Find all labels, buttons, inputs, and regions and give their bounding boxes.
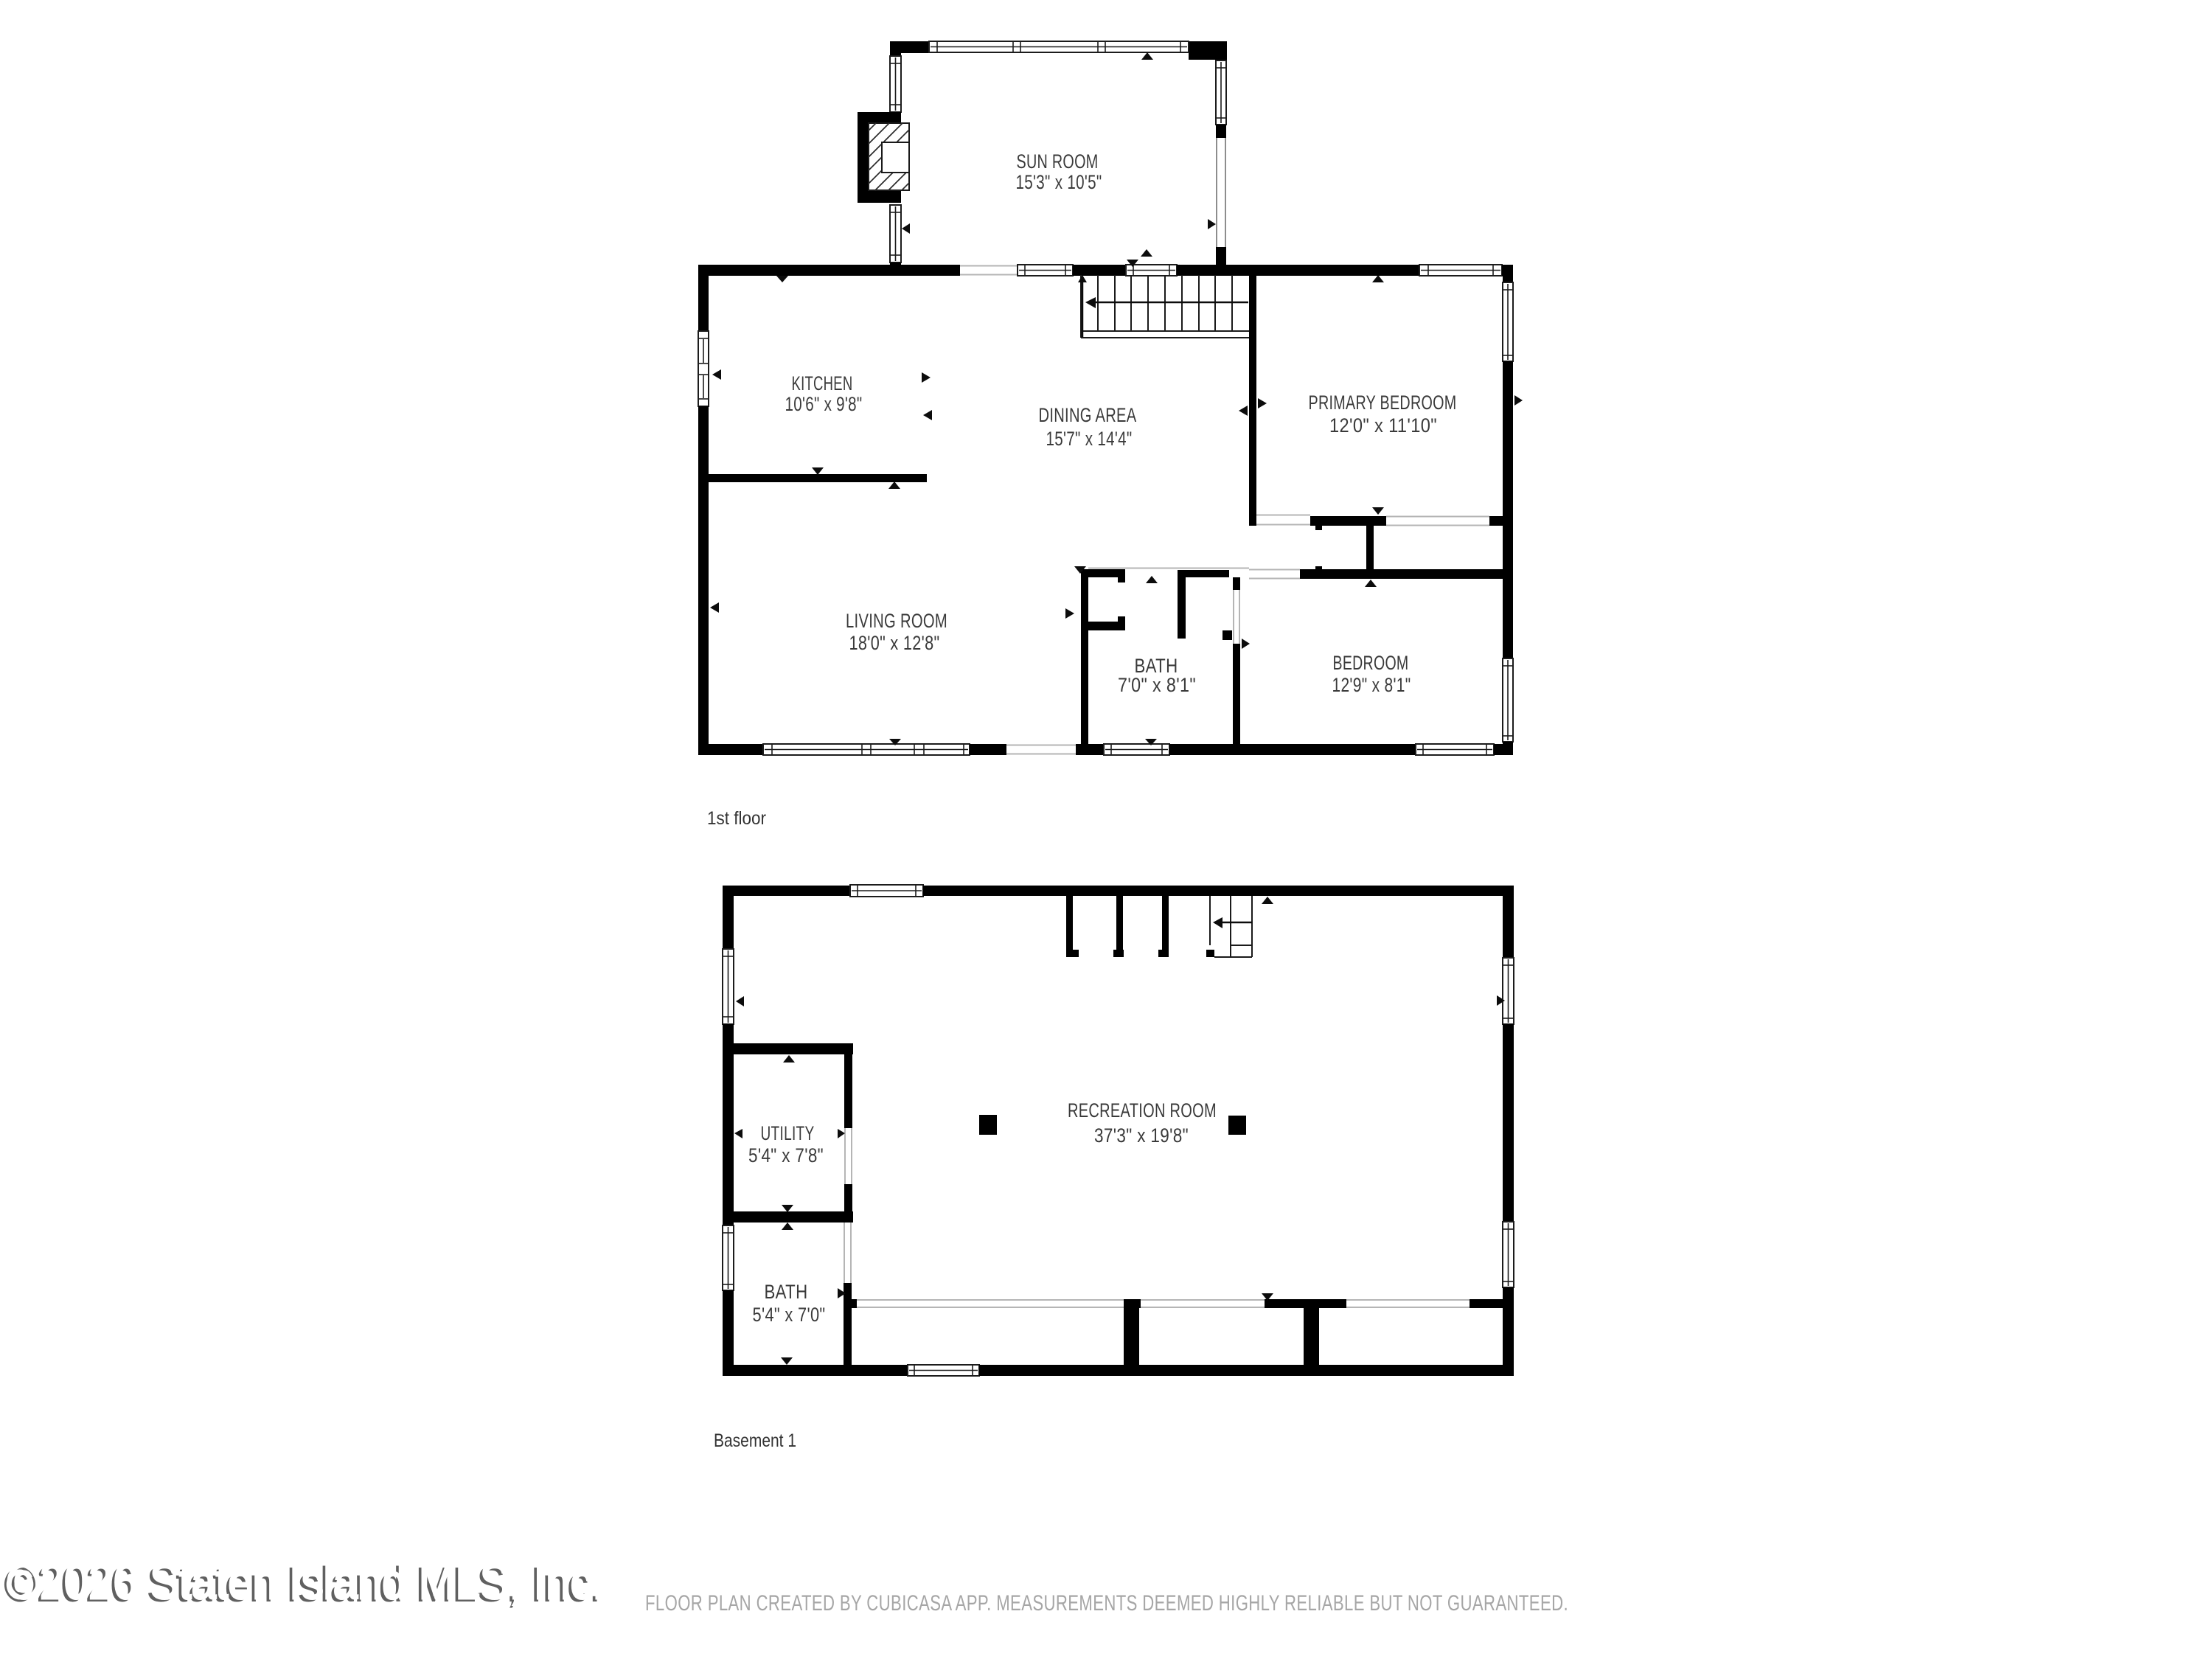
- svg-text:10'6" x 9'8": 10'6" x 9'8": [785, 393, 863, 415]
- svg-text:©2026 Staten Island MLS, Inc.: ©2026 Staten Island MLS, Inc.: [7, 1554, 605, 1610]
- svg-text:1st floor: 1st floor: [707, 808, 766, 829]
- svg-text:KITCHEN: KITCHEN: [792, 372, 853, 394]
- svg-text:LIVING ROOM: LIVING ROOM: [846, 610, 947, 632]
- svg-text:5'4" x 7'0": 5'4" x 7'0": [753, 1304, 826, 1326]
- svg-text:BATH: BATH: [765, 1281, 808, 1303]
- svg-text:15'7" x 14'4": 15'7" x 14'4": [1046, 428, 1133, 450]
- svg-text:12'9" x 8'1": 12'9" x 8'1": [1332, 674, 1411, 696]
- svg-text:SUN ROOM: SUN ROOM: [1017, 150, 1099, 173]
- svg-text:5'4" x 7'8": 5'4" x 7'8": [748, 1144, 824, 1166]
- svg-text:DINING AREA: DINING AREA: [1039, 404, 1137, 426]
- svg-text:37'3" x 19'8": 37'3" x 19'8": [1094, 1124, 1189, 1147]
- svg-text:18'0" x 12'8": 18'0" x 12'8": [849, 632, 940, 654]
- svg-text:FLOOR PLAN CREATED BY CUBICASA: FLOOR PLAN CREATED BY CUBICASA APP. MEAS…: [645, 1591, 1568, 1615]
- svg-text:RECREATION ROOM: RECREATION ROOM: [1068, 1099, 1217, 1121]
- svg-text:PRIMARY BEDROOM: PRIMARY BEDROOM: [1309, 392, 1457, 414]
- svg-text:7'0" x 8'1": 7'0" x 8'1": [1118, 674, 1196, 696]
- svg-text:15'3" x 10'5": 15'3" x 10'5": [1016, 171, 1102, 193]
- svg-text:Basement 1: Basement 1: [714, 1430, 796, 1451]
- svg-text:12'0" x 11'10": 12'0" x 11'10": [1329, 414, 1437, 437]
- svg-text:BEDROOM: BEDROOM: [1333, 652, 1409, 674]
- svg-text:UTILITY: UTILITY: [761, 1122, 815, 1144]
